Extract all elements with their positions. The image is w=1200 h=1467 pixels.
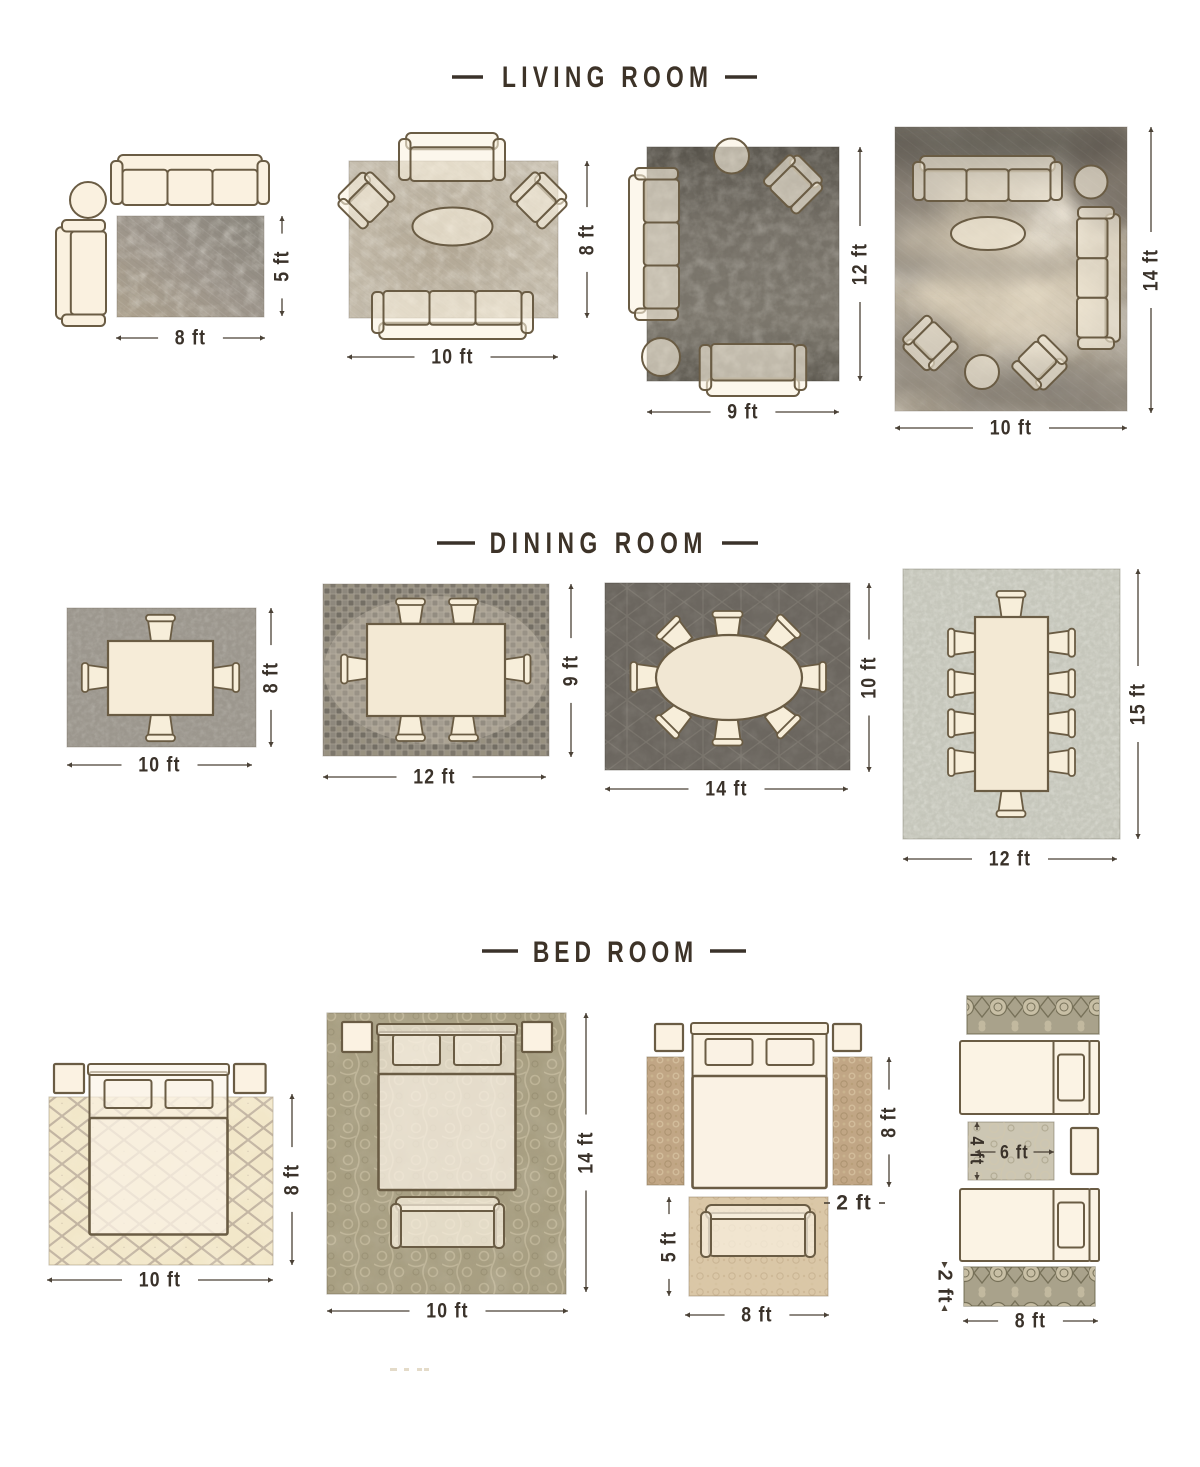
svg-text:9 ft: 9 ft bbox=[559, 655, 583, 686]
svg-text:9 ft: 9 ft bbox=[727, 400, 758, 424]
svg-text:5 ft: 5 ft bbox=[270, 250, 294, 281]
svg-text:15 ft: 15 ft bbox=[1126, 683, 1150, 726]
svg-text:8 ft: 8 ft bbox=[175, 326, 206, 350]
svg-text:2 ft: 2 ft bbox=[836, 1192, 872, 1215]
svg-text:8 ft: 8 ft bbox=[1015, 1309, 1046, 1333]
svg-text:10 ft: 10 ft bbox=[857, 656, 881, 699]
svg-text:10 ft: 10 ft bbox=[139, 1268, 182, 1292]
svg-text:14 ft: 14 ft bbox=[705, 777, 748, 801]
svg-text:10 ft: 10 ft bbox=[431, 345, 474, 369]
svg-text:5 ft: 5 ft bbox=[657, 1231, 681, 1262]
svg-text:2 ft: 2 ft bbox=[934, 1270, 956, 1304]
svg-text:6 ft: 6 ft bbox=[1000, 1141, 1029, 1163]
svg-text:8 ft: 8 ft bbox=[280, 1164, 304, 1195]
svg-text:10 ft: 10 ft bbox=[426, 1299, 469, 1323]
svg-text:14 ft: 14 ft bbox=[1139, 249, 1163, 292]
svg-text:10 ft: 10 ft bbox=[138, 753, 181, 777]
svg-text:BED ROOM: BED ROOM bbox=[533, 935, 693, 969]
svg-text:12 ft: 12 ft bbox=[989, 847, 1032, 871]
svg-text:12 ft: 12 ft bbox=[848, 243, 872, 286]
svg-text:8 ft: 8 ft bbox=[259, 662, 283, 693]
svg-text:8 ft: 8 ft bbox=[877, 1106, 901, 1137]
svg-text:14 ft: 14 ft bbox=[574, 1131, 598, 1174]
svg-text:10 ft: 10 ft bbox=[990, 416, 1033, 440]
svg-text:12 ft: 12 ft bbox=[413, 765, 456, 789]
svg-text:8 ft: 8 ft bbox=[575, 224, 599, 255]
svg-text:8 ft: 8 ft bbox=[741, 1303, 772, 1327]
